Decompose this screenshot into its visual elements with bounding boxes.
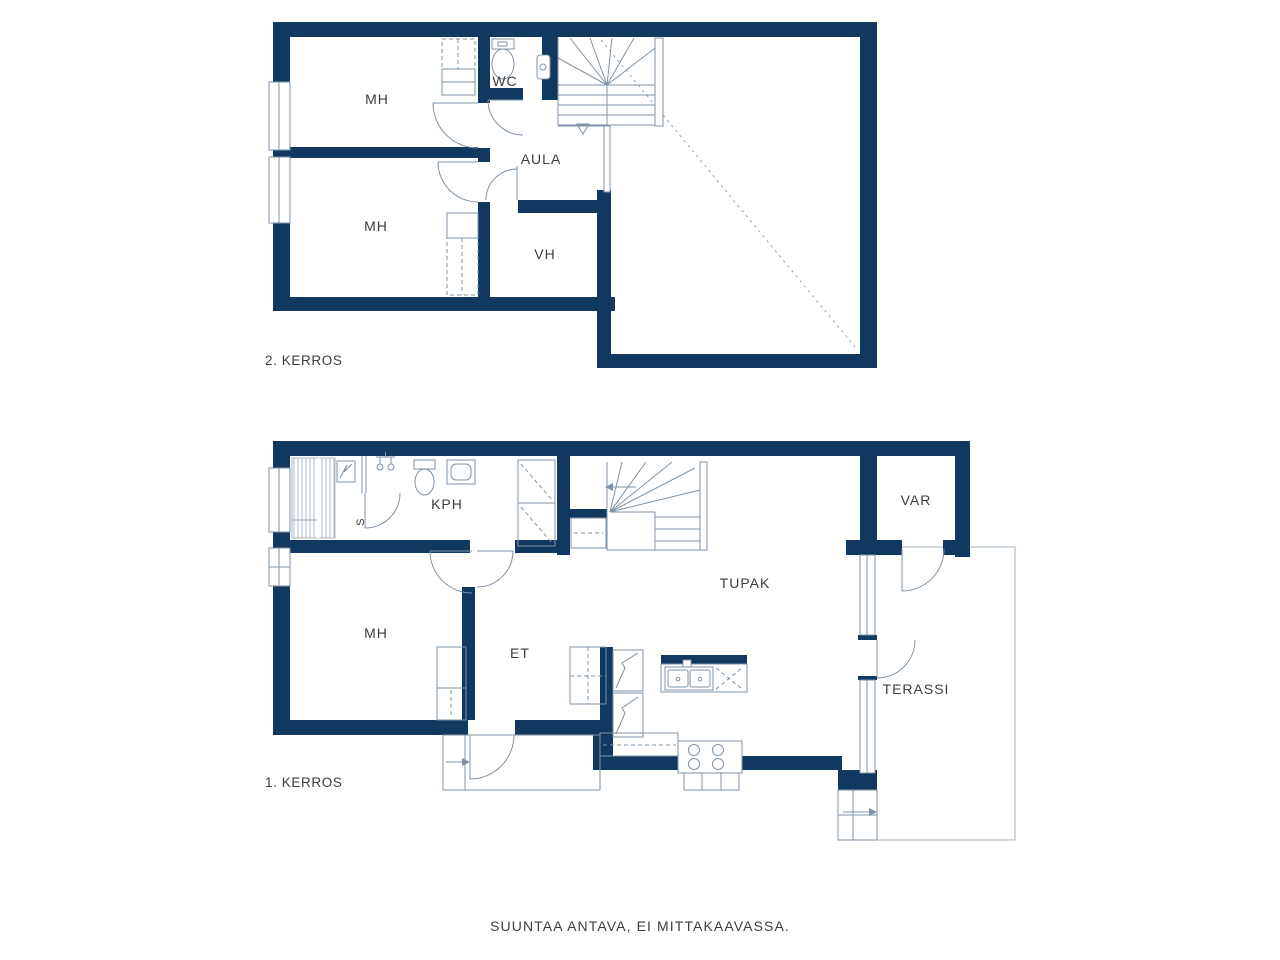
sink-icon [447, 460, 475, 484]
stair-railing [655, 38, 663, 126]
room-label-tupak: TUPAK [720, 575, 771, 591]
stove-icon [678, 741, 742, 790]
door-vh [486, 166, 517, 200]
room-label-terassi: TERASSI [883, 681, 950, 697]
sauna-glass-wall [362, 456, 366, 493]
stair-railing [700, 462, 707, 550]
floorplan-page: MH WC AULA MH VH 2. KERROS [0, 0, 1280, 960]
door-mh-bottom [438, 162, 478, 202]
window [269, 468, 290, 532]
wardrobe [447, 213, 478, 295]
room-label-wc: WC [492, 73, 517, 89]
room-label-aula: AULA [521, 151, 562, 167]
room-label-mh: MH [364, 625, 388, 641]
floor1-label: 1. KERROS [265, 775, 342, 790]
freezer-icon [613, 693, 643, 737]
door-mh [430, 551, 472, 593]
sink-icon [537, 55, 550, 79]
room-label-mh-bottom: MH [364, 218, 388, 234]
sauna-benches [292, 458, 335, 538]
closet [571, 518, 606, 548]
toilet-icon [414, 460, 435, 495]
door-wc [488, 100, 523, 135]
window [860, 680, 875, 773]
floor1-plan: KPH S MH ET TUPAK VAR TERASSI 1. KERROS [265, 441, 1015, 840]
room-label-kph: KPH [431, 496, 463, 512]
staircase-upper [558, 38, 663, 192]
stair-railing [604, 126, 610, 192]
room-label-vh: VH [534, 246, 555, 262]
footer: SUUNTAA ANTAVA, EI MITTAKAAVASSA. [490, 918, 790, 934]
staircase-lower [605, 462, 707, 550]
wardrobe [437, 647, 466, 720]
door-et [477, 551, 513, 587]
wardrobe [442, 39, 475, 95]
floorplan-canvas: MH WC AULA MH VH 2. KERROS [0, 0, 1280, 960]
window [269, 157, 290, 223]
door-terrace [877, 640, 915, 678]
room-label-mh-top: MH [365, 91, 389, 107]
faucet-icon [683, 660, 691, 667]
entrance-porch [443, 735, 600, 790]
terrace-steps [838, 790, 877, 840]
kitchen-island [661, 655, 747, 692]
floor2-label: 2. KERROS [265, 353, 342, 368]
floor2-walls [273, 22, 877, 368]
cabinet [518, 460, 555, 546]
door-mh-top [433, 103, 478, 148]
fridge-icon [613, 650, 643, 691]
dishwasher-icon [716, 668, 742, 689]
sloped-ceiling-line [601, 40, 855, 347]
window [269, 82, 290, 150]
door-entrance [470, 735, 514, 779]
sauna-heater-icon [337, 461, 355, 482]
door-var [902, 549, 944, 591]
room-label-var: VAR [901, 492, 932, 508]
window [269, 548, 290, 586]
door-sauna [365, 493, 400, 528]
disclaimer-text: SUUNTAA ANTAVA, EI MITTAKAAVASSA. [490, 918, 790, 934]
room-label-et: ET [510, 645, 530, 661]
window [860, 555, 875, 635]
floor2-plan: MH WC AULA MH VH 2. KERROS [265, 22, 877, 368]
room-label-sauna: S [355, 518, 367, 526]
